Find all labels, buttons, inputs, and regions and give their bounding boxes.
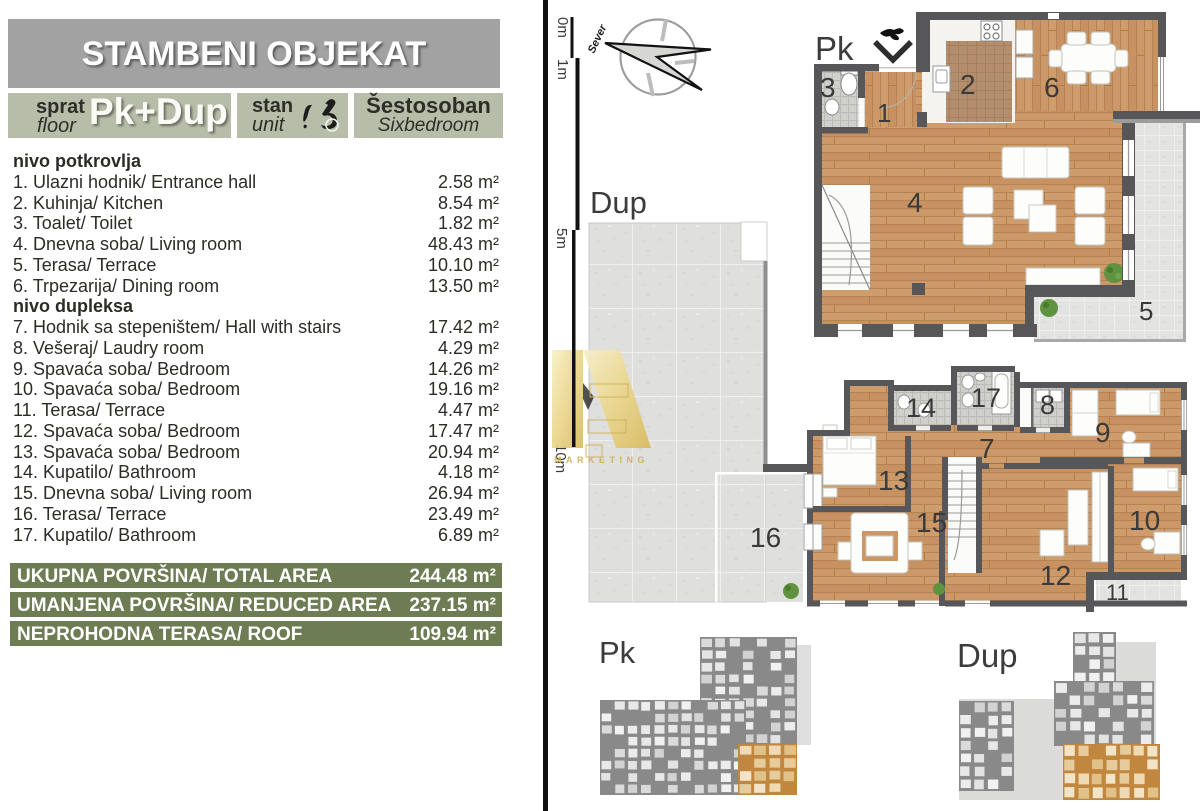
svg-text:Dup: Dup — [957, 637, 1018, 674]
svg-text:Pk: Pk — [599, 635, 636, 670]
svg-text:9: 9 — [1095, 417, 1111, 448]
svg-text:7: 7 — [979, 433, 995, 464]
svg-text:6: 6 — [1044, 72, 1060, 103]
svg-text:12: 12 — [1040, 560, 1071, 591]
svg-text:10: 10 — [1129, 505, 1160, 536]
svg-text:Dup: Dup — [590, 185, 647, 220]
svg-text:5: 5 — [1139, 296, 1153, 326]
svg-text:2: 2 — [960, 69, 976, 100]
svg-text:Sever: Sever — [586, 22, 610, 55]
svg-text:MARKETING: MARKETING — [554, 455, 649, 465]
svg-text:Pk: Pk — [815, 30, 854, 67]
svg-text:15: 15 — [916, 507, 947, 538]
svg-text:13: 13 — [878, 465, 909, 496]
svg-text:14: 14 — [906, 393, 936, 423]
svg-text:8: 8 — [1040, 390, 1055, 420]
svg-text:3: 3 — [820, 72, 836, 103]
svg-text:0m: 0m — [554, 17, 571, 38]
svg-text:5m: 5m — [553, 228, 570, 249]
svg-text:4: 4 — [907, 187, 923, 218]
svg-text:11: 11 — [1106, 580, 1129, 605]
svg-text:17: 17 — [971, 383, 1001, 413]
svg-text:16: 16 — [750, 522, 781, 553]
svg-text:1m: 1m — [554, 59, 571, 80]
svg-text:1: 1 — [877, 98, 891, 128]
